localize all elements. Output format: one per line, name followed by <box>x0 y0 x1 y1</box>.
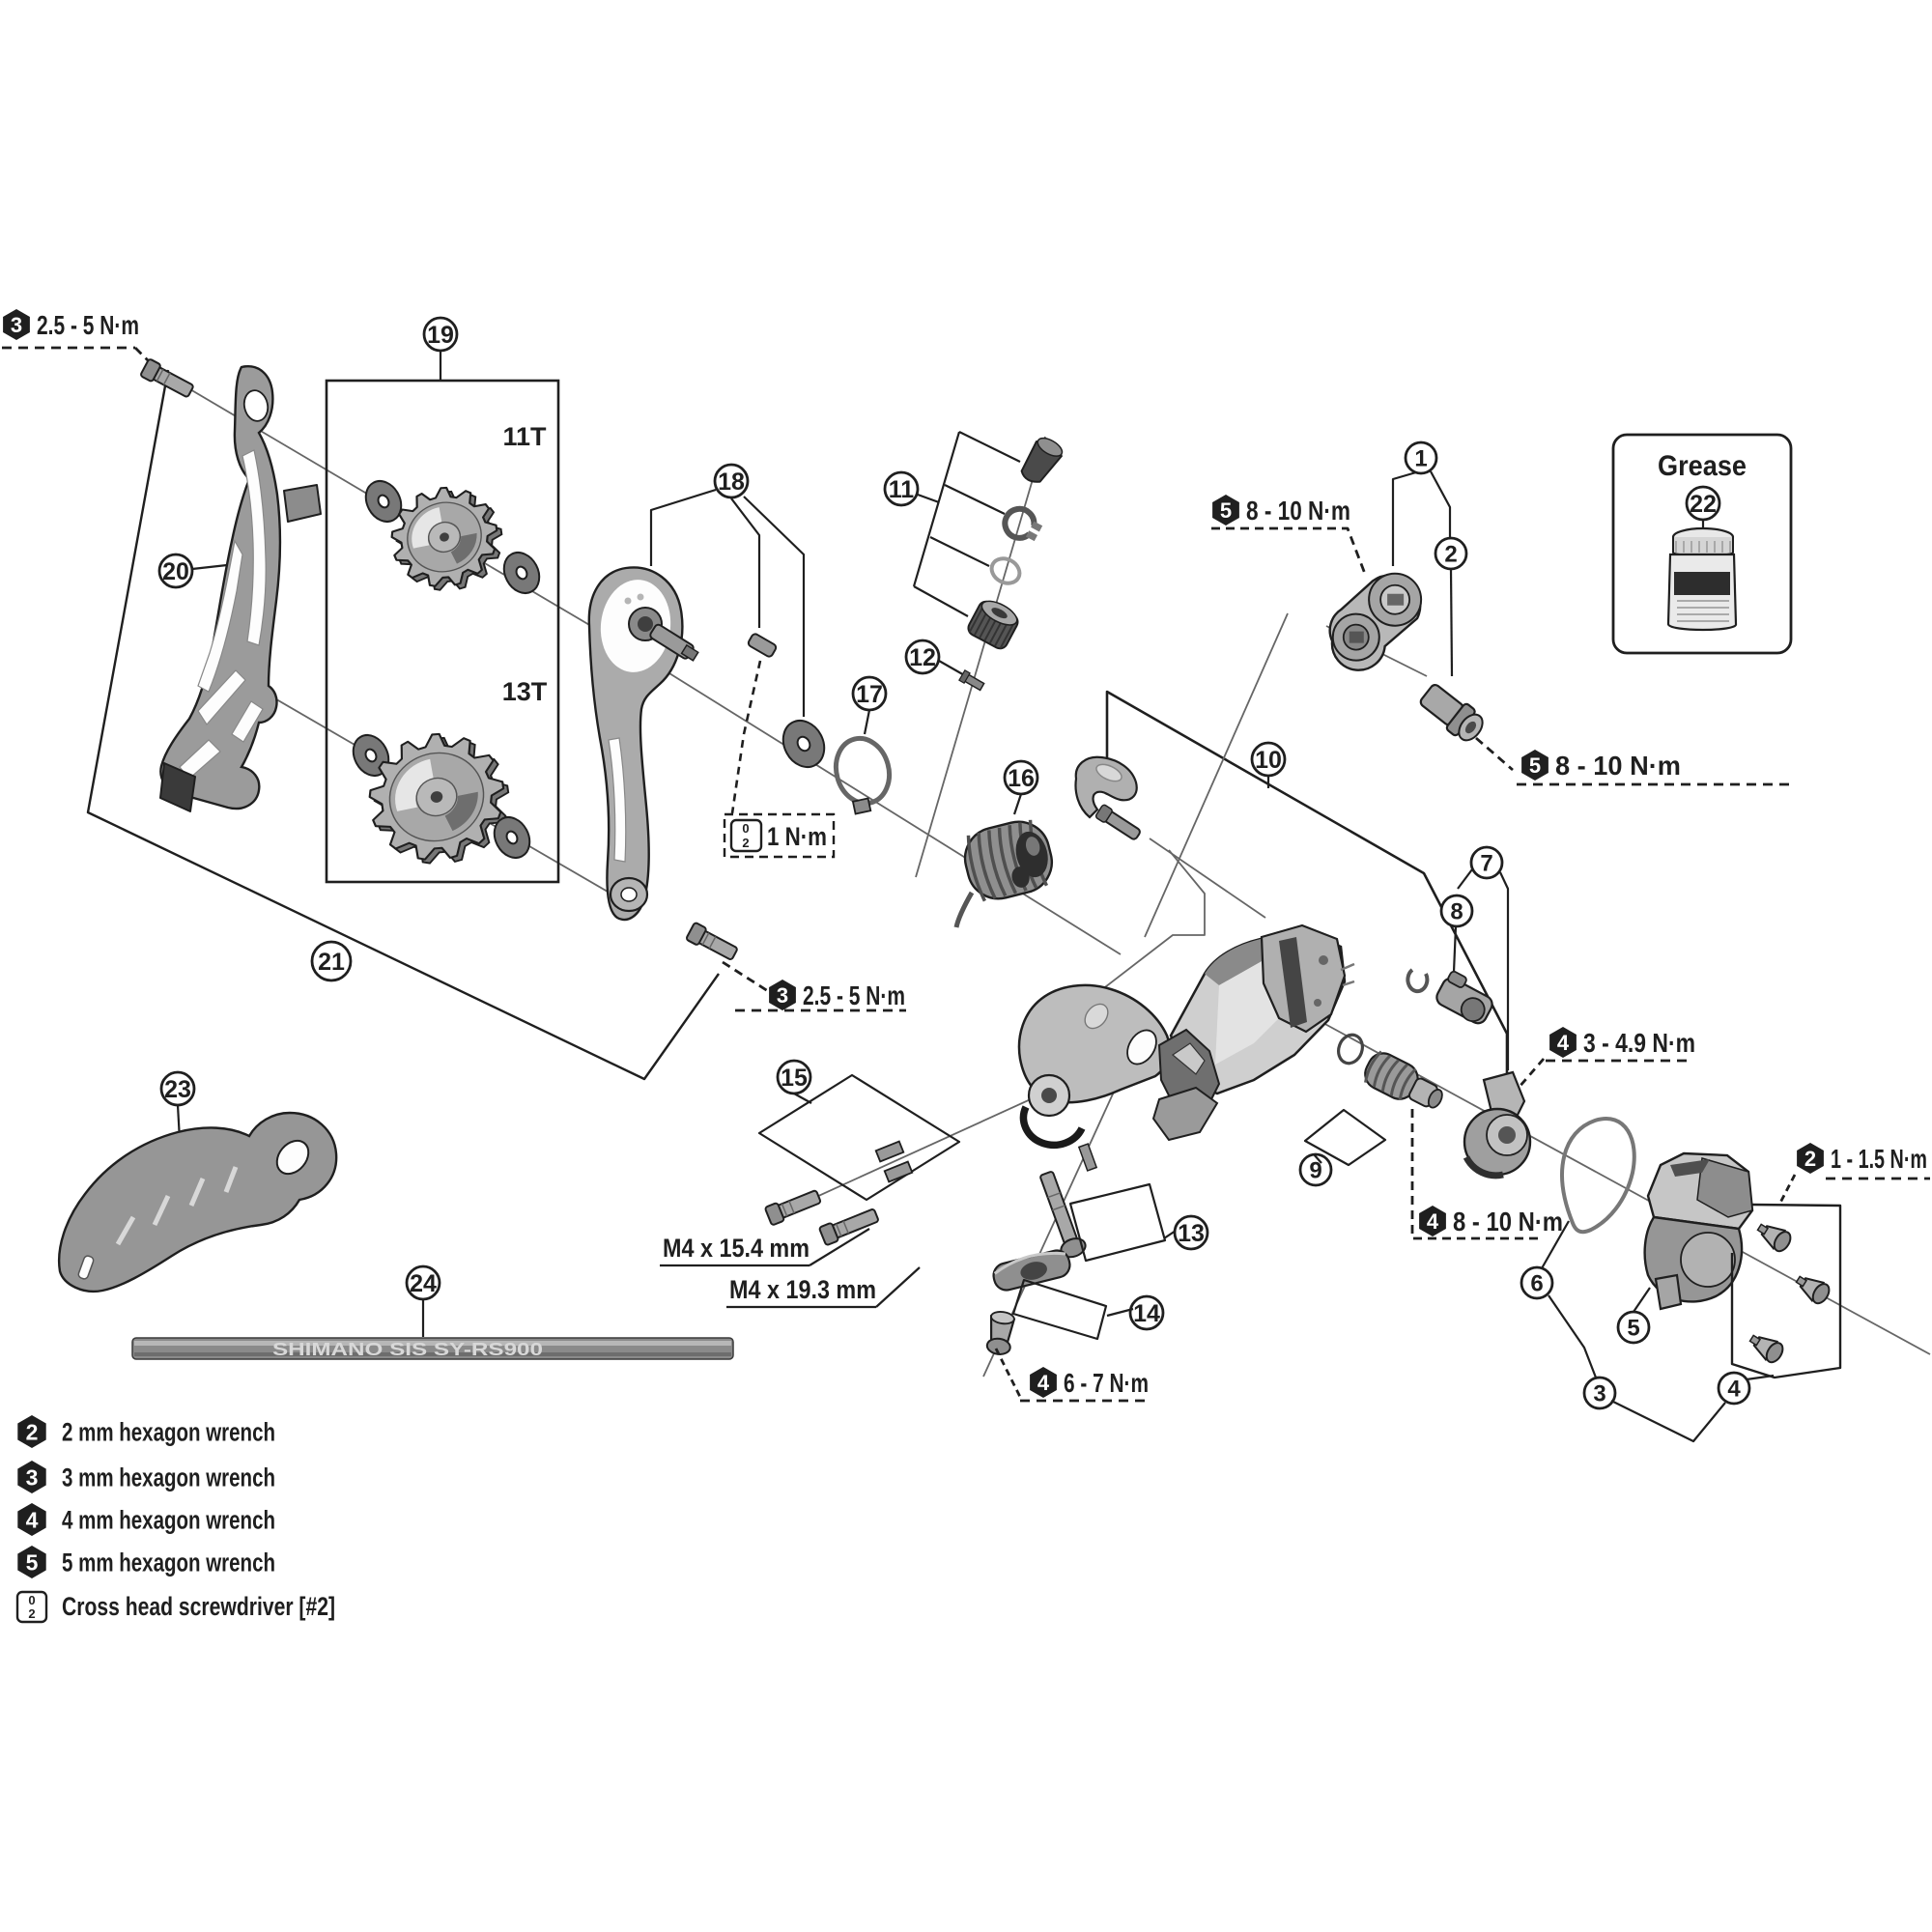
svg-text:0: 0 <box>742 821 749 836</box>
svg-text:20: 20 <box>162 558 189 585</box>
svg-text:Grease: Grease <box>1658 450 1747 482</box>
svg-text:2: 2 <box>742 836 749 850</box>
svg-text:10: 10 <box>1255 747 1282 774</box>
svg-text:18: 18 <box>718 469 745 496</box>
svg-text:0: 0 <box>28 1593 35 1607</box>
svg-text:22: 22 <box>1690 491 1717 518</box>
svg-text:21: 21 <box>318 949 345 976</box>
svg-text:4: 4 <box>1427 1209 1439 1234</box>
svg-text:4: 4 <box>26 1507 39 1532</box>
svg-text:4 mm hexagon wrench: 4 mm hexagon wrench <box>62 1506 275 1535</box>
svg-text:8 - 10 N·m: 8 - 10 N·m <box>1555 751 1681 781</box>
svg-text:2: 2 <box>28 1606 35 1621</box>
svg-text:17: 17 <box>856 681 883 708</box>
svg-text:11T: 11T <box>502 422 547 451</box>
svg-text:5: 5 <box>1529 753 1541 778</box>
svg-text:1 N·m: 1 N·m <box>767 822 827 851</box>
svg-text:3: 3 <box>11 313 22 337</box>
svg-text:8 - 10 N·m: 8 - 10 N·m <box>1246 496 1350 526</box>
svg-text:5: 5 <box>1627 1315 1639 1341</box>
svg-text:3 mm hexagon wrench: 3 mm hexagon wrench <box>62 1463 275 1492</box>
svg-text:4: 4 <box>1037 1371 1050 1395</box>
svg-text:2: 2 <box>26 1419 39 1444</box>
svg-text:19: 19 <box>427 322 454 349</box>
svg-text:2: 2 <box>1804 1147 1816 1171</box>
svg-text:8 - 10 N·m: 8 - 10 N·m <box>1453 1207 1563 1236</box>
svg-text:2.5 - 5 N·m: 2.5 - 5 N·m <box>37 310 139 340</box>
svg-text:M4 x 19.3 mm: M4 x 19.3 mm <box>729 1275 876 1304</box>
svg-text:13T: 13T <box>502 677 548 706</box>
svg-text:3 - 4.9 N·m: 3 - 4.9 N·m <box>1583 1028 1695 1058</box>
svg-text:8: 8 <box>1450 898 1463 924</box>
svg-text:5: 5 <box>26 1549 39 1575</box>
svg-text:Cross head screwdriver [#2]: Cross head screwdriver [#2] <box>62 1592 335 1621</box>
svg-text:12: 12 <box>909 644 936 671</box>
svg-text:6 - 7 N·m: 6 - 7 N·m <box>1064 1368 1149 1398</box>
svg-text:4: 4 <box>1727 1376 1741 1402</box>
svg-text:3: 3 <box>777 983 788 1008</box>
svg-text:11: 11 <box>889 476 915 503</box>
svg-text:5 mm hexagon wrench: 5 mm hexagon wrench <box>62 1548 275 1577</box>
svg-text:1: 1 <box>1414 445 1427 471</box>
svg-text:2 mm hexagon wrench: 2 mm hexagon wrench <box>62 1418 275 1447</box>
svg-text:13: 13 <box>1178 1220 1205 1247</box>
svg-text:15: 15 <box>781 1065 808 1092</box>
svg-text:7: 7 <box>1480 850 1492 876</box>
svg-text:6: 6 <box>1530 1270 1543 1296</box>
svg-text:24: 24 <box>410 1270 437 1297</box>
svg-text:3: 3 <box>26 1464 39 1490</box>
svg-text:5: 5 <box>1220 498 1232 523</box>
svg-text:14: 14 <box>1133 1300 1160 1327</box>
svg-text:SHIMANO SIS SY-RS900: SHIMANO SIS SY-RS900 <box>272 1340 543 1359</box>
svg-text:M4 x 15.4 mm: M4 x 15.4 mm <box>663 1234 810 1263</box>
svg-text:3: 3 <box>1593 1380 1605 1406</box>
svg-text:2.5 - 5 N·m: 2.5 - 5 N·m <box>803 980 905 1010</box>
svg-text:1 - 1.5 N·m: 1 - 1.5 N·m <box>1831 1144 1927 1174</box>
svg-text:23: 23 <box>164 1076 191 1103</box>
svg-text:2: 2 <box>1444 541 1457 567</box>
svg-text:16: 16 <box>1008 765 1035 792</box>
svg-text:4: 4 <box>1557 1031 1570 1055</box>
